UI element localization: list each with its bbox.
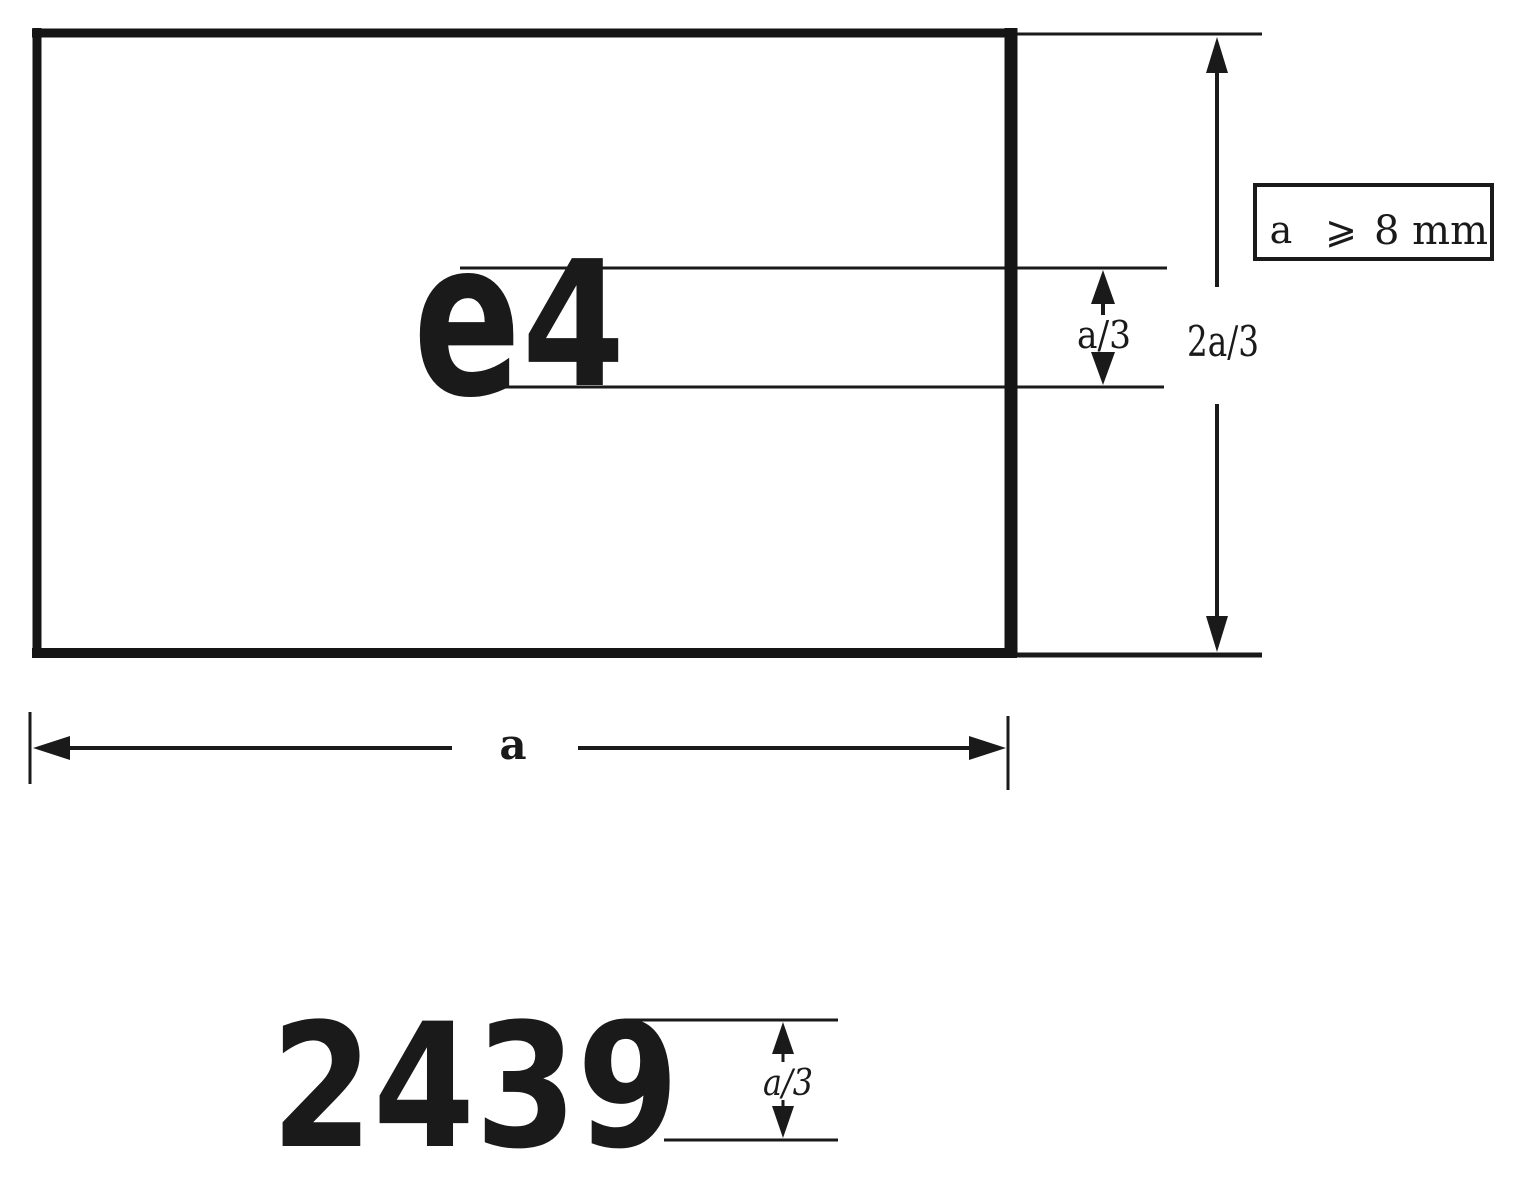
note-variable-label: a [1270,208,1293,252]
band-height-label: 2a/3 [1187,317,1259,366]
arrow-right-icon [969,736,1006,760]
note-value-label: 8 mm [1374,208,1488,254]
arrow-down-icon [1206,616,1228,652]
mark-letter-e: e [413,194,521,445]
char-height-dimension: a/3 [1077,270,1131,385]
width-label: a [499,720,526,769]
diagram-canvas: e 4 a/3 2a/3 a a ⩾ 8 mm 2439 [0,0,1522,1180]
arrow-down-icon [1091,352,1115,385]
number-height-dimension: a/3 [763,1022,813,1138]
approval-mark-figure: e 4 a/3 2a/3 a a ⩾ 8 mm 2439 [0,0,1522,1180]
char-height-label: a/3 [1077,313,1131,357]
min-size-note-box: a ⩾ 8 mm [1255,185,1492,259]
mark-country-number: 4 [522,224,625,427]
band-height-dimension: 2a/3 [1187,37,1259,652]
width-dimension: a [30,712,1008,790]
arrow-down-icon [772,1106,794,1138]
greater-equal-symbol: ⩾ [1325,208,1357,252]
approval-number: 2439 [271,986,679,1180]
number-height-label: a/3 [763,1063,813,1104]
